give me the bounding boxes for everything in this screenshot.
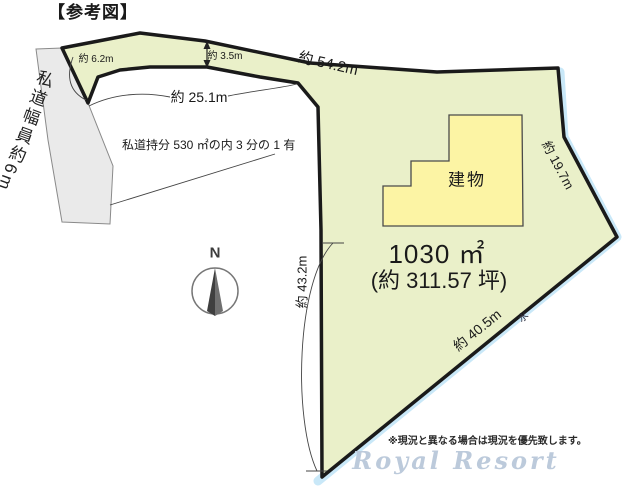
dimension-strip-length: 約 25.1m xyxy=(171,90,228,104)
area-square-meters: 1030 ㎡ xyxy=(388,241,485,267)
building-label: 建物 xyxy=(448,172,486,189)
dimension-left-end: 約 6.2m xyxy=(78,55,113,65)
watermark-logo: Royal Resort xyxy=(352,449,559,473)
compass-icon xyxy=(192,268,238,316)
area-tsubo: (約 311.57 坪) xyxy=(371,270,508,292)
dimension-strip-width: 約 3.5m xyxy=(207,52,242,62)
dimension-left-edge: 約 43.2m xyxy=(296,256,309,309)
leader-road-share xyxy=(110,154,275,205)
plot-diagram-canvas xyxy=(0,0,627,488)
land-plot-shape xyxy=(62,33,617,477)
reference-figure: 【参考図】 私道幅員約6m 私道持分 530 ㎡の内 3 分の 1 有 約 6.… xyxy=(0,0,627,488)
road-share-note: 私道持分 530 ㎡の内 3 分の 1 有 xyxy=(122,139,295,151)
leader-25-1m-right xyxy=(228,84,297,96)
compass-north-label: N xyxy=(210,246,221,261)
leader-25-1m-left xyxy=(89,94,170,106)
figure-title: 【参考図】 xyxy=(48,4,138,21)
